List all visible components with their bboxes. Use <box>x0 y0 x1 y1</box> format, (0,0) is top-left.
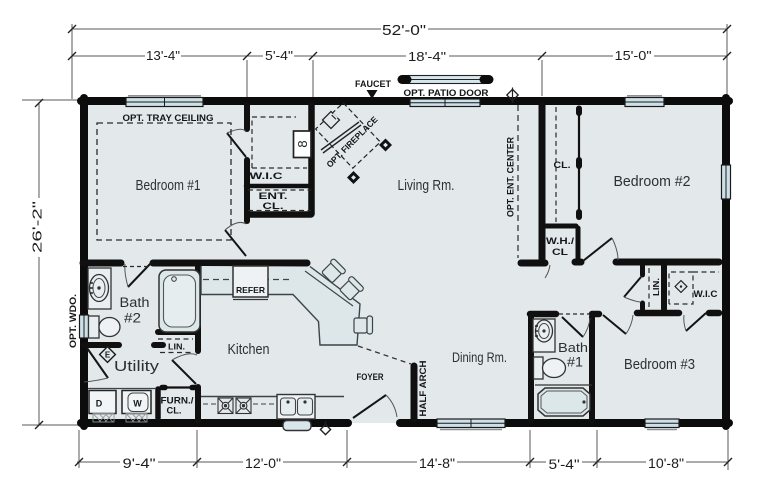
svg-text:9'-4": 9'-4" <box>123 456 156 471</box>
svg-text:13'-4": 13'-4" <box>146 48 180 63</box>
svg-text:5'-4": 5'-4" <box>549 457 580 472</box>
svg-text:E: E <box>105 351 111 360</box>
svg-text:W: W <box>133 399 142 409</box>
svg-text:HALF ARCH: HALF ARCH <box>418 361 428 417</box>
svg-text:18'-4": 18'-4" <box>408 49 446 64</box>
svg-text:CL.: CL. <box>263 201 284 211</box>
svg-text:#1: #1 <box>567 355 583 370</box>
svg-text:LIN.: LIN. <box>168 342 185 352</box>
svg-text:14'-8": 14'-8" <box>419 456 455 471</box>
svg-text:FURN./: FURN./ <box>161 396 195 406</box>
svg-text:ENT.: ENT. <box>259 191 288 201</box>
svg-text:12'-0": 12'-0" <box>245 456 281 471</box>
svg-text:Bedroom #1: Bedroom #1 <box>136 177 201 194</box>
svg-text:10'-8": 10'-8" <box>648 456 684 471</box>
svg-text:15'-0": 15'-0" <box>615 48 652 63</box>
svg-text:CL: CL <box>552 247 569 257</box>
svg-text:W.I.C: W.I.C <box>694 289 718 300</box>
svg-text:OPT. ENT. CENTER: OPT. ENT. CENTER <box>506 137 516 217</box>
svg-text:Living Rm.: Living Rm. <box>398 177 455 194</box>
svg-text:REFER: REFER <box>236 285 265 295</box>
svg-text:W.I.C: W.I.C <box>250 171 283 182</box>
svg-text:Bath: Bath <box>558 340 588 355</box>
svg-text:OPT. PATIO DOOR: OPT. PATIO DOOR <box>404 88 489 99</box>
svg-text:Bedroom #3: Bedroom #3 <box>624 356 695 373</box>
svg-text:8: 8 <box>295 140 310 147</box>
svg-text:#2: #2 <box>124 311 141 326</box>
svg-text:5'-4": 5'-4" <box>265 48 293 63</box>
svg-text:Dining Rm.: Dining Rm. <box>452 349 507 365</box>
svg-text:OPT. TRAY CEILING: OPT. TRAY CEILING <box>123 113 214 124</box>
svg-text:Bedroom #2: Bedroom #2 <box>614 173 691 190</box>
svg-text:Kitchen: Kitchen <box>228 341 270 358</box>
svg-text:W.H./: W.H./ <box>546 236 575 246</box>
svg-text:OPT. WDO.: OPT. WDO. <box>68 294 78 348</box>
svg-text:FAUCET: FAUCET <box>355 79 391 90</box>
svg-text:52'-0": 52'-0" <box>382 22 426 39</box>
svg-text:CL.: CL. <box>554 160 571 170</box>
svg-text:Utility: Utility <box>114 358 160 375</box>
svg-text:D: D <box>96 399 103 409</box>
svg-text:Bath: Bath <box>120 295 150 310</box>
svg-text:CL.: CL. <box>167 406 182 416</box>
svg-text:LIN.: LIN. <box>651 278 661 296</box>
svg-text:26'-2": 26'-2" <box>31 201 45 253</box>
svg-text:FOYER: FOYER <box>357 372 384 383</box>
